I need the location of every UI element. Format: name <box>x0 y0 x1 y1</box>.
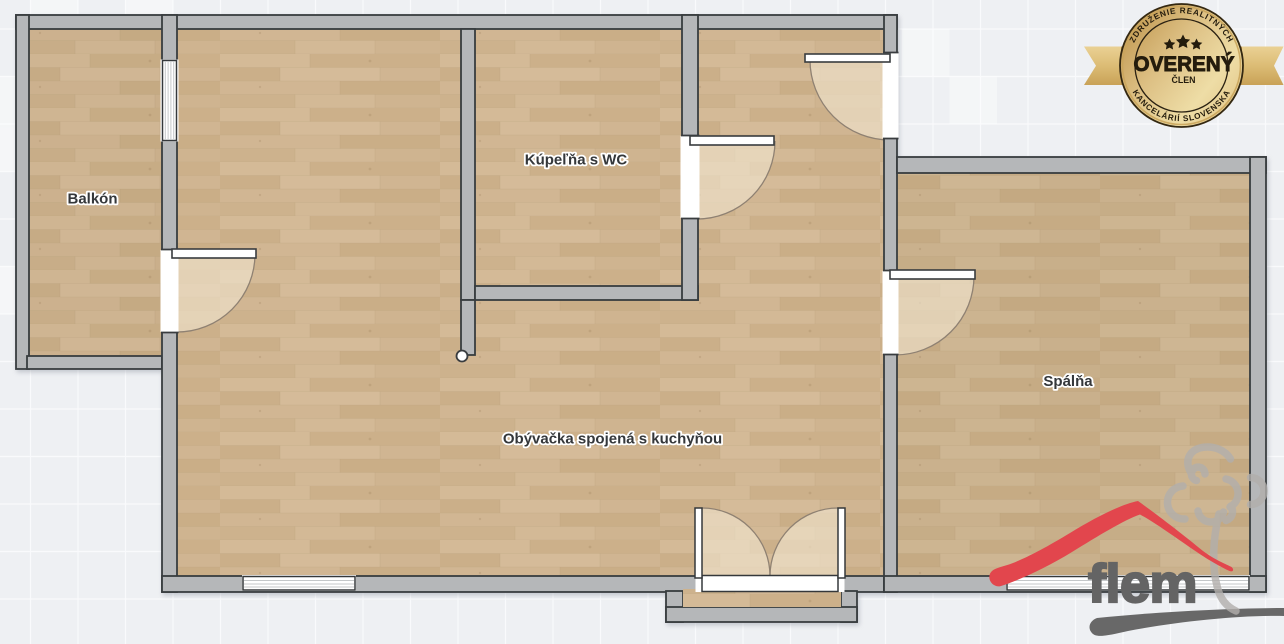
svg-text:ČLEN: ČLEN <box>1172 74 1196 85</box>
svg-text:Kúpeľňa s WC: Kúpeľňa s WC <box>525 152 628 169</box>
svg-text:flem: flem <box>1088 554 1197 614</box>
svg-text:Spálňa: Spálňa <box>1043 373 1093 390</box>
svg-text:Obývačka spojená s kuchyňou: Obývačka spojená s kuchyňou <box>503 431 722 448</box>
svg-text:OVERENÝ: OVERENÝ <box>1134 52 1235 76</box>
svg-text:Balkón: Balkón <box>67 191 117 208</box>
